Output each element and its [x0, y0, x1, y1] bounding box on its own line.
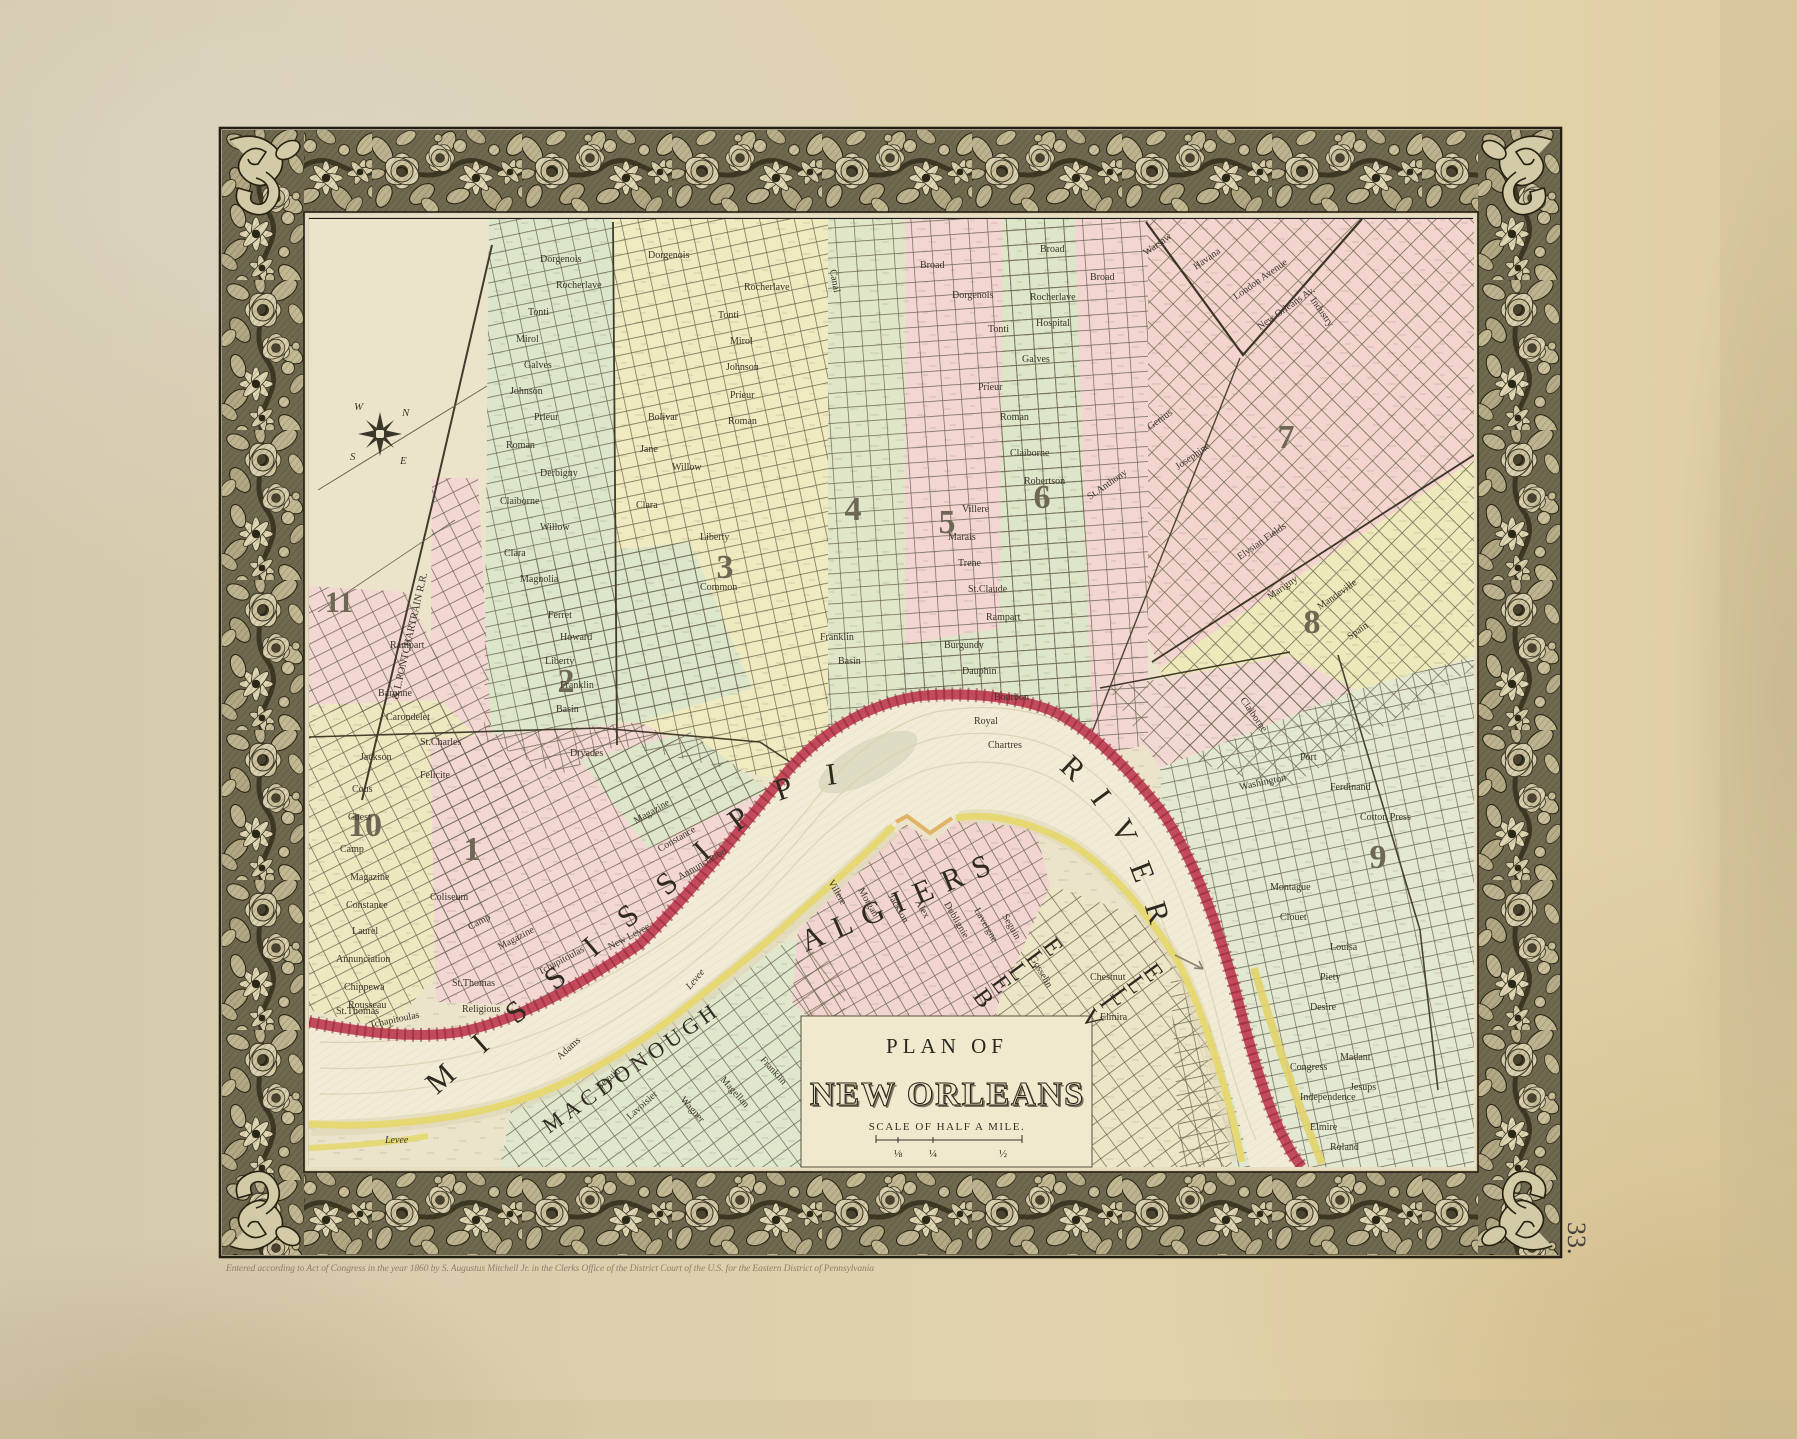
svg-text:Basin: Basin — [556, 704, 579, 715]
svg-text:Roman: Roman — [728, 416, 757, 427]
svg-text:3: 3 — [717, 549, 734, 586]
svg-text:Jane: Jane — [640, 444, 658, 455]
svg-text:Levee: Levee — [384, 1135, 409, 1146]
svg-text:⅛: ⅛ — [894, 1148, 903, 1160]
svg-text:Bourbon: Bourbon — [994, 692, 1029, 703]
svg-text:Laurel: Laurel — [352, 926, 378, 937]
svg-text:Coliseum: Coliseum — [430, 892, 469, 903]
svg-text:Tonti: Tonti — [718, 310, 739, 321]
svg-text:Magazine: Magazine — [350, 872, 390, 883]
svg-text:Tonti: Tonti — [528, 307, 549, 318]
svg-text:Johnson: Johnson — [726, 362, 759, 373]
svg-text:NEW ORLEANS: NEW ORLEANS — [810, 1076, 1084, 1113]
svg-text:¼: ¼ — [929, 1148, 937, 1160]
svg-text:Louisa: Louisa — [1330, 942, 1358, 953]
svg-text:Villere: Villere — [962, 504, 990, 515]
svg-text:Robertson: Robertson — [1024, 476, 1065, 487]
svg-text:11: 11 — [325, 586, 353, 619]
svg-text:Bolivar: Bolivar — [648, 412, 679, 423]
svg-text:Camp: Camp — [340, 844, 364, 855]
svg-text:Broad: Broad — [920, 260, 944, 271]
svg-text:Willow: Willow — [540, 522, 570, 533]
svg-text:Chest: Chest — [348, 812, 371, 823]
svg-text:Prieur: Prieur — [730, 390, 755, 401]
svg-text:St.Thomas: St.Thomas — [452, 978, 495, 989]
svg-text:Dorgenois: Dorgenois — [648, 250, 690, 261]
svg-text:Broad: Broad — [1090, 272, 1114, 283]
svg-text:Derbigny: Derbigny — [540, 468, 578, 479]
svg-text:Magnolia: Magnolia — [520, 574, 559, 585]
svg-text:Chestnut: Chestnut — [1090, 972, 1126, 983]
svg-text:Franklin: Franklin — [560, 680, 594, 691]
svg-text:Piety: Piety — [1320, 972, 1341, 983]
svg-text:Royal: Royal — [974, 716, 998, 727]
svg-text:Entered according to Act of Co: Entered according to Act of Congress in … — [225, 1263, 874, 1274]
svg-text:Franklin: Franklin — [820, 632, 854, 643]
svg-text:SCALE OF HALF A MILE.: SCALE OF HALF A MILE. — [869, 1121, 1026, 1133]
svg-text:Basin: Basin — [838, 656, 861, 667]
svg-text:Jesups: Jesups — [1350, 1082, 1376, 1093]
svg-text:Rocherlave: Rocherlave — [744, 282, 790, 293]
svg-text:PLAN OF: PLAN OF — [886, 1034, 1008, 1058]
svg-text:Liberty: Liberty — [545, 656, 574, 667]
svg-text:W: W — [354, 401, 364, 413]
svg-text:Religious: Religious — [462, 1004, 500, 1015]
svg-text:Ferret: Ferret — [548, 610, 572, 621]
svg-text:Desire: Desire — [1310, 1002, 1337, 1013]
svg-text:Jackson: Jackson — [360, 752, 392, 763]
svg-text:S: S — [350, 451, 356, 463]
svg-text:Dauphin: Dauphin — [962, 666, 996, 677]
svg-text:Galves: Galves — [524, 360, 552, 371]
svg-text:Congress: Congress — [1290, 1062, 1327, 1073]
svg-text:Felicite: Felicite — [420, 770, 451, 781]
svg-text:Carondelet: Carondelet — [386, 712, 430, 723]
svg-text:8: 8 — [1304, 604, 1321, 641]
svg-text:Galves: Galves — [1022, 354, 1050, 365]
svg-text:Cotton Press: Cotton Press — [1360, 812, 1411, 823]
svg-text:33.: 33. — [1562, 1222, 1591, 1255]
svg-text:Common: Common — [700, 582, 737, 593]
svg-text:Mirol: Mirol — [730, 336, 753, 347]
svg-text:Cous: Cous — [352, 784, 373, 795]
svg-text:Madant: Madant — [1340, 1052, 1371, 1063]
svg-text:1: 1 — [464, 831, 481, 868]
svg-text:Roman: Roman — [1000, 412, 1029, 423]
svg-text:N: N — [401, 407, 410, 419]
svg-text:Howard: Howard — [560, 632, 592, 643]
svg-text:Johnson: Johnson — [510, 386, 543, 397]
svg-text:Rocherlave: Rocherlave — [1030, 292, 1076, 303]
svg-text:Roman: Roman — [506, 440, 535, 451]
svg-text:Chippewa: Chippewa — [344, 982, 385, 993]
svg-text:½: ½ — [999, 1148, 1007, 1160]
svg-text:Claiborne: Claiborne — [1010, 448, 1050, 459]
svg-text:Elmire: Elmire — [1310, 1122, 1338, 1133]
svg-text:Rousseau: Rousseau — [348, 1000, 386, 1011]
svg-text:Rampart: Rampart — [986, 612, 1021, 623]
svg-text:7: 7 — [1278, 419, 1295, 456]
svg-text:Clara: Clara — [504, 548, 526, 559]
svg-text:Prieur: Prieur — [534, 412, 559, 423]
svg-text:9: 9 — [1370, 839, 1387, 876]
svg-text:Willow: Willow — [672, 462, 702, 473]
svg-text:Mirol: Mirol — [516, 334, 539, 345]
svg-text:Annunciation: Annunciation — [336, 954, 390, 965]
svg-text:Burgundy: Burgundy — [944, 640, 984, 651]
svg-text:E: E — [399, 455, 407, 467]
svg-text:Chartres: Chartres — [988, 740, 1022, 751]
svg-text:Hospital: Hospital — [1036, 318, 1070, 329]
svg-text:Ferdinand: Ferdinand — [1330, 782, 1371, 793]
svg-text:Port: Port — [1300, 752, 1317, 763]
svg-text:Dorgenois: Dorgenois — [540, 254, 582, 265]
svg-text:Liberty: Liberty — [700, 532, 729, 543]
svg-text:Montague: Montague — [1270, 882, 1311, 893]
svg-text:Tonti: Tonti — [988, 324, 1009, 335]
svg-text:Clara: Clara — [636, 500, 658, 511]
svg-text:4: 4 — [845, 491, 862, 528]
svg-text:Prieur: Prieur — [978, 382, 1003, 393]
svg-text:Rocherlave: Rocherlave — [556, 280, 602, 291]
svg-text:Roland: Roland — [1330, 1142, 1359, 1153]
svg-text:St.Charles: St.Charles — [420, 737, 461, 748]
svg-text:Broad: Broad — [1040, 244, 1064, 255]
svg-text:Marais: Marais — [948, 532, 976, 543]
svg-text:Dorgenois: Dorgenois — [952, 290, 994, 301]
svg-text:Independence: Independence — [1300, 1092, 1356, 1103]
svg-text:St.Claude: St.Claude — [968, 584, 1008, 595]
svg-text:Constance: Constance — [346, 900, 388, 911]
svg-text:Clouet: Clouet — [1280, 912, 1307, 923]
svg-text:Trene: Trene — [958, 558, 982, 569]
svg-text:Elmira: Elmira — [1100, 1012, 1128, 1023]
svg-text:Claiborne: Claiborne — [500, 496, 540, 507]
svg-text:Dryades: Dryades — [570, 748, 603, 759]
